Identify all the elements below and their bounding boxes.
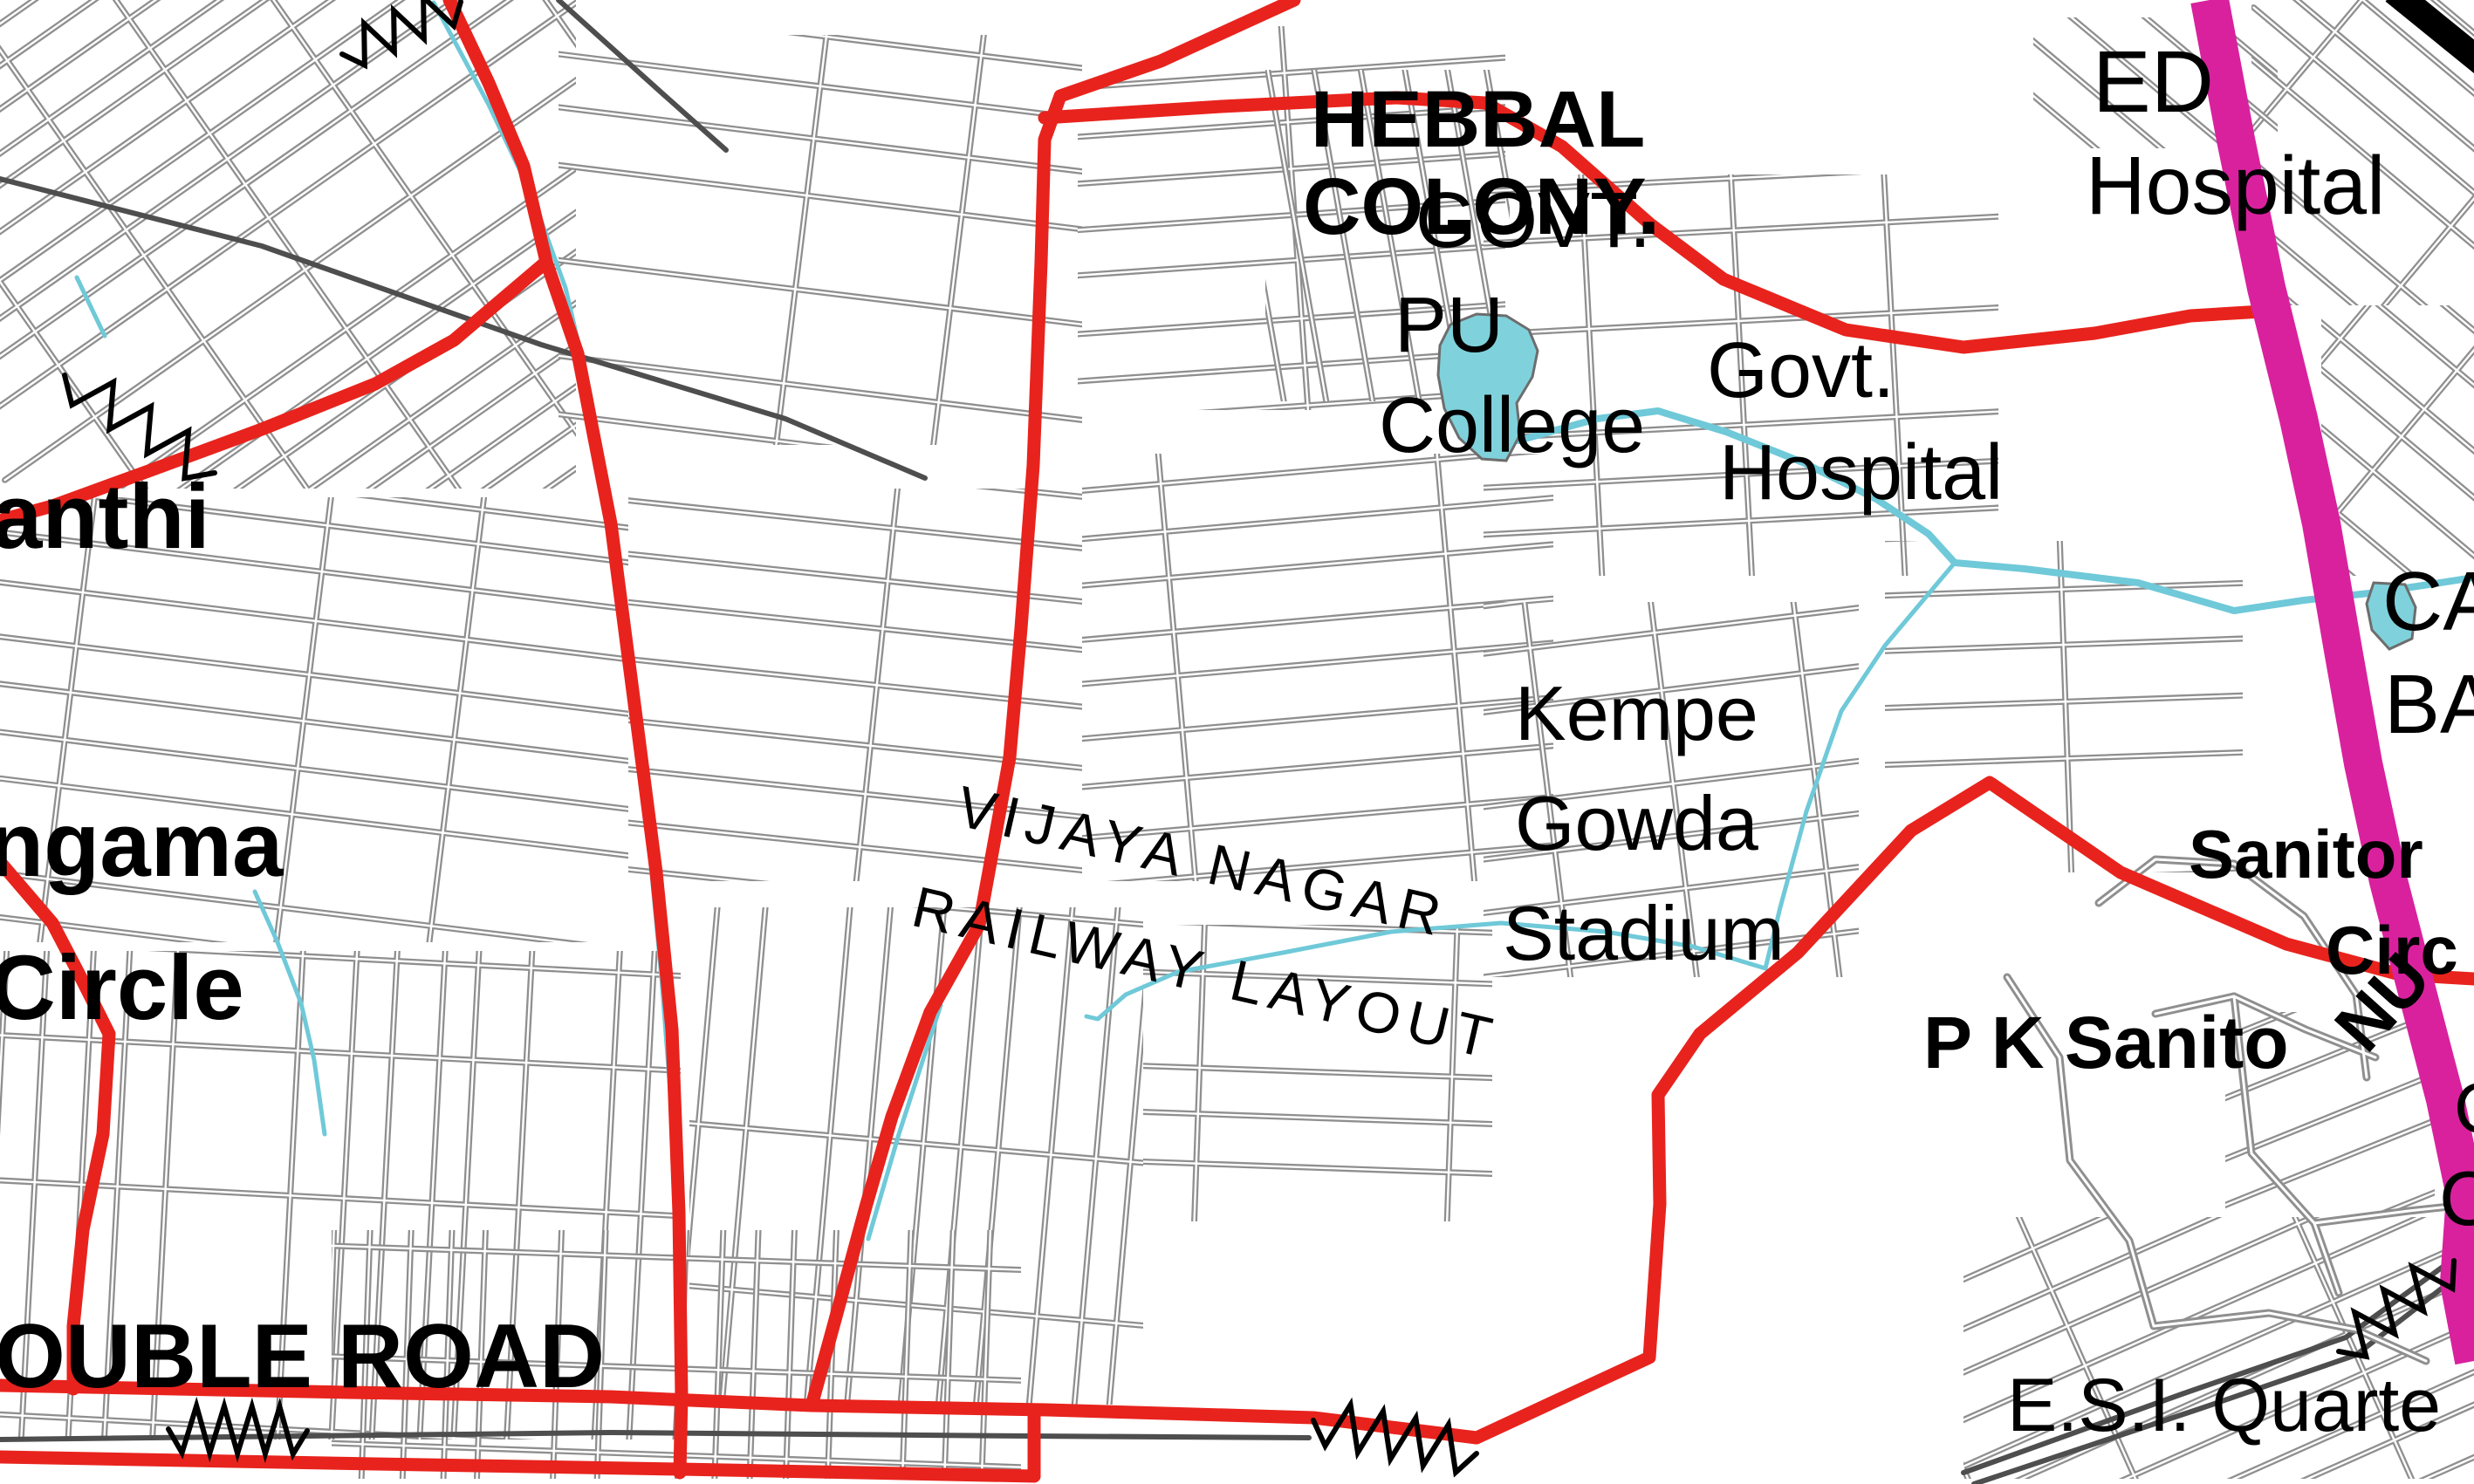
railway-line xyxy=(0,1433,1309,1440)
railway-line xyxy=(559,0,726,150)
map-label-fragment-c2: C xyxy=(2439,1155,2474,1241)
map-label-sanitorium-cut: Sanitor xyxy=(2189,816,2423,892)
map-label-govt-hospital-2: Hospital xyxy=(1719,429,2003,516)
map-label-esi-quarters-cut: E.S.I. Quarte xyxy=(2007,1364,2441,1447)
map-label-kempe-gowda-1: Kempe xyxy=(1515,670,1758,756)
map-label-govt-pu-college-2: PU xyxy=(1395,282,1504,369)
map-label-govt-pu-college-3: College xyxy=(1379,382,1645,469)
stream xyxy=(255,892,325,1134)
map-label-govt-pu-college-1: GOVT. xyxy=(1415,177,1651,264)
map-label-ca-cut: CA xyxy=(2382,555,2474,648)
map-label-govt-hospital-1: Govt. xyxy=(1707,327,1895,414)
stream xyxy=(434,3,670,1091)
map-label-ba-cut: BA xyxy=(2384,658,2474,751)
map-label-gangama-circle-1: ngama xyxy=(0,794,284,896)
map-label-pk-sanitorium: P K Sanito xyxy=(1923,1002,2289,1084)
map-label-anthi-cut: anthi xyxy=(0,466,210,568)
map-label-double-road-cut: OUBLE ROAD xyxy=(0,1306,605,1407)
railway-crossing-marker xyxy=(168,1405,307,1453)
railway-crossing-marker xyxy=(65,375,215,478)
map-label-fragment-c1: C xyxy=(2454,1069,2474,1148)
map-label-gangama-circle-2: Circle xyxy=(0,937,244,1039)
map-label-ed-hospital-1: ED xyxy=(2093,33,2214,131)
major-road-red xyxy=(546,262,682,1473)
city-map-canvas[interactable]: HEBBALCOLONY.GOVT.PUCollegeEDHospitalGov… xyxy=(0,0,2474,1484)
map-label-hebbal-colony-1: HEBBAL xyxy=(1311,75,1645,164)
map-label-kempe-gowda-2: Gowda xyxy=(1515,780,1758,866)
map-label-kempe-gowda-3: Stadium xyxy=(1503,890,1785,976)
map-label-ed-hospital-2: Hospital xyxy=(2086,140,2385,232)
map-viewport[interactable]: HEBBALCOLONY.GOVT.PUCollegeEDHospitalGov… xyxy=(0,0,2474,1484)
